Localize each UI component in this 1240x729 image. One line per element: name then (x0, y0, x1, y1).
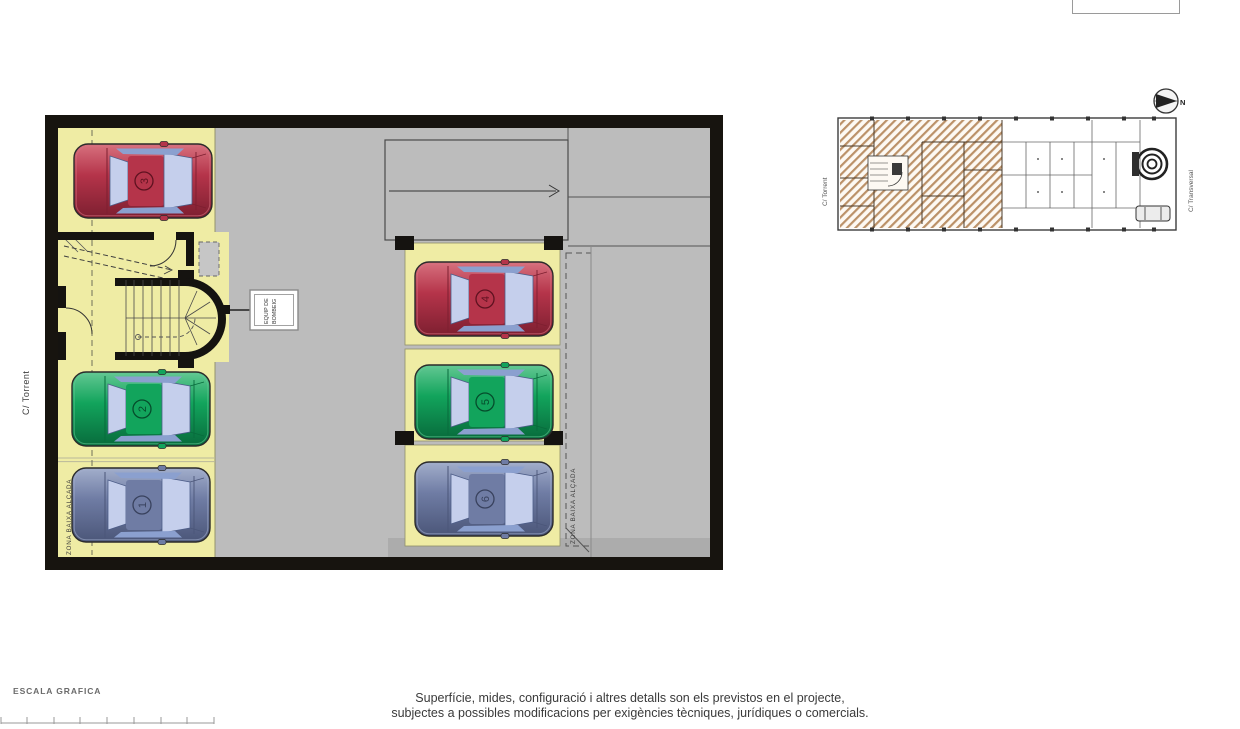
overview-street-label-transversal: C/ Transversal (1188, 170, 1195, 212)
car-2: 2 (72, 370, 210, 449)
svg-text:5: 5 (480, 399, 492, 405)
zone-label-right: ZONA BAIXA ALÇADA (570, 468, 577, 544)
equip-label-line1: EQUIP DE (264, 298, 270, 324)
svg-text:2: 2 (137, 406, 149, 412)
svg-text:1: 1 (137, 502, 149, 508)
scale-bar (0, 711, 224, 729)
car-5: 5 (415, 363, 553, 442)
car-1: 1 (72, 466, 210, 545)
scale-label: ESCALA GRAFICA (13, 686, 101, 696)
garage-floor-plan: EQUIP DE BOMBEIG ZONA BAIXA ALÇADA ZONA … (45, 115, 723, 570)
overview-hatch-zone (840, 120, 1002, 228)
plan-canvas: EQUIP DE BOMBEIG ZONA BAIXA ALÇADA ZONA … (58, 128, 710, 557)
disclaimer-text: Superfície, mides, configuració i altres… (295, 691, 965, 720)
overview-street-label-torrent: C/ Torrent (822, 178, 829, 206)
north-label: N (1180, 98, 1185, 107)
north-arrow-icon: N (1150, 84, 1192, 118)
street-label-torrent: C/ Torrent (21, 371, 31, 415)
cutoff-frame (1072, 0, 1180, 14)
svg-text:3: 3 (139, 178, 151, 184)
disclaimer-line-2: subjectes a possibles modificacions per … (295, 706, 965, 721)
car-4: 4 (415, 260, 553, 339)
car-6: 6 (415, 460, 553, 539)
car-3: 3 (74, 142, 212, 221)
svg-text:4: 4 (480, 296, 492, 302)
overview-car-icon (1136, 206, 1170, 221)
svg-text:6: 6 (480, 496, 492, 502)
overview-stair (868, 156, 908, 190)
overview-plan (834, 112, 1182, 238)
equip-label-line2: BOMBEIG (272, 299, 278, 324)
disclaimer-line-1: Superfície, mides, configuració i altres… (295, 691, 965, 706)
